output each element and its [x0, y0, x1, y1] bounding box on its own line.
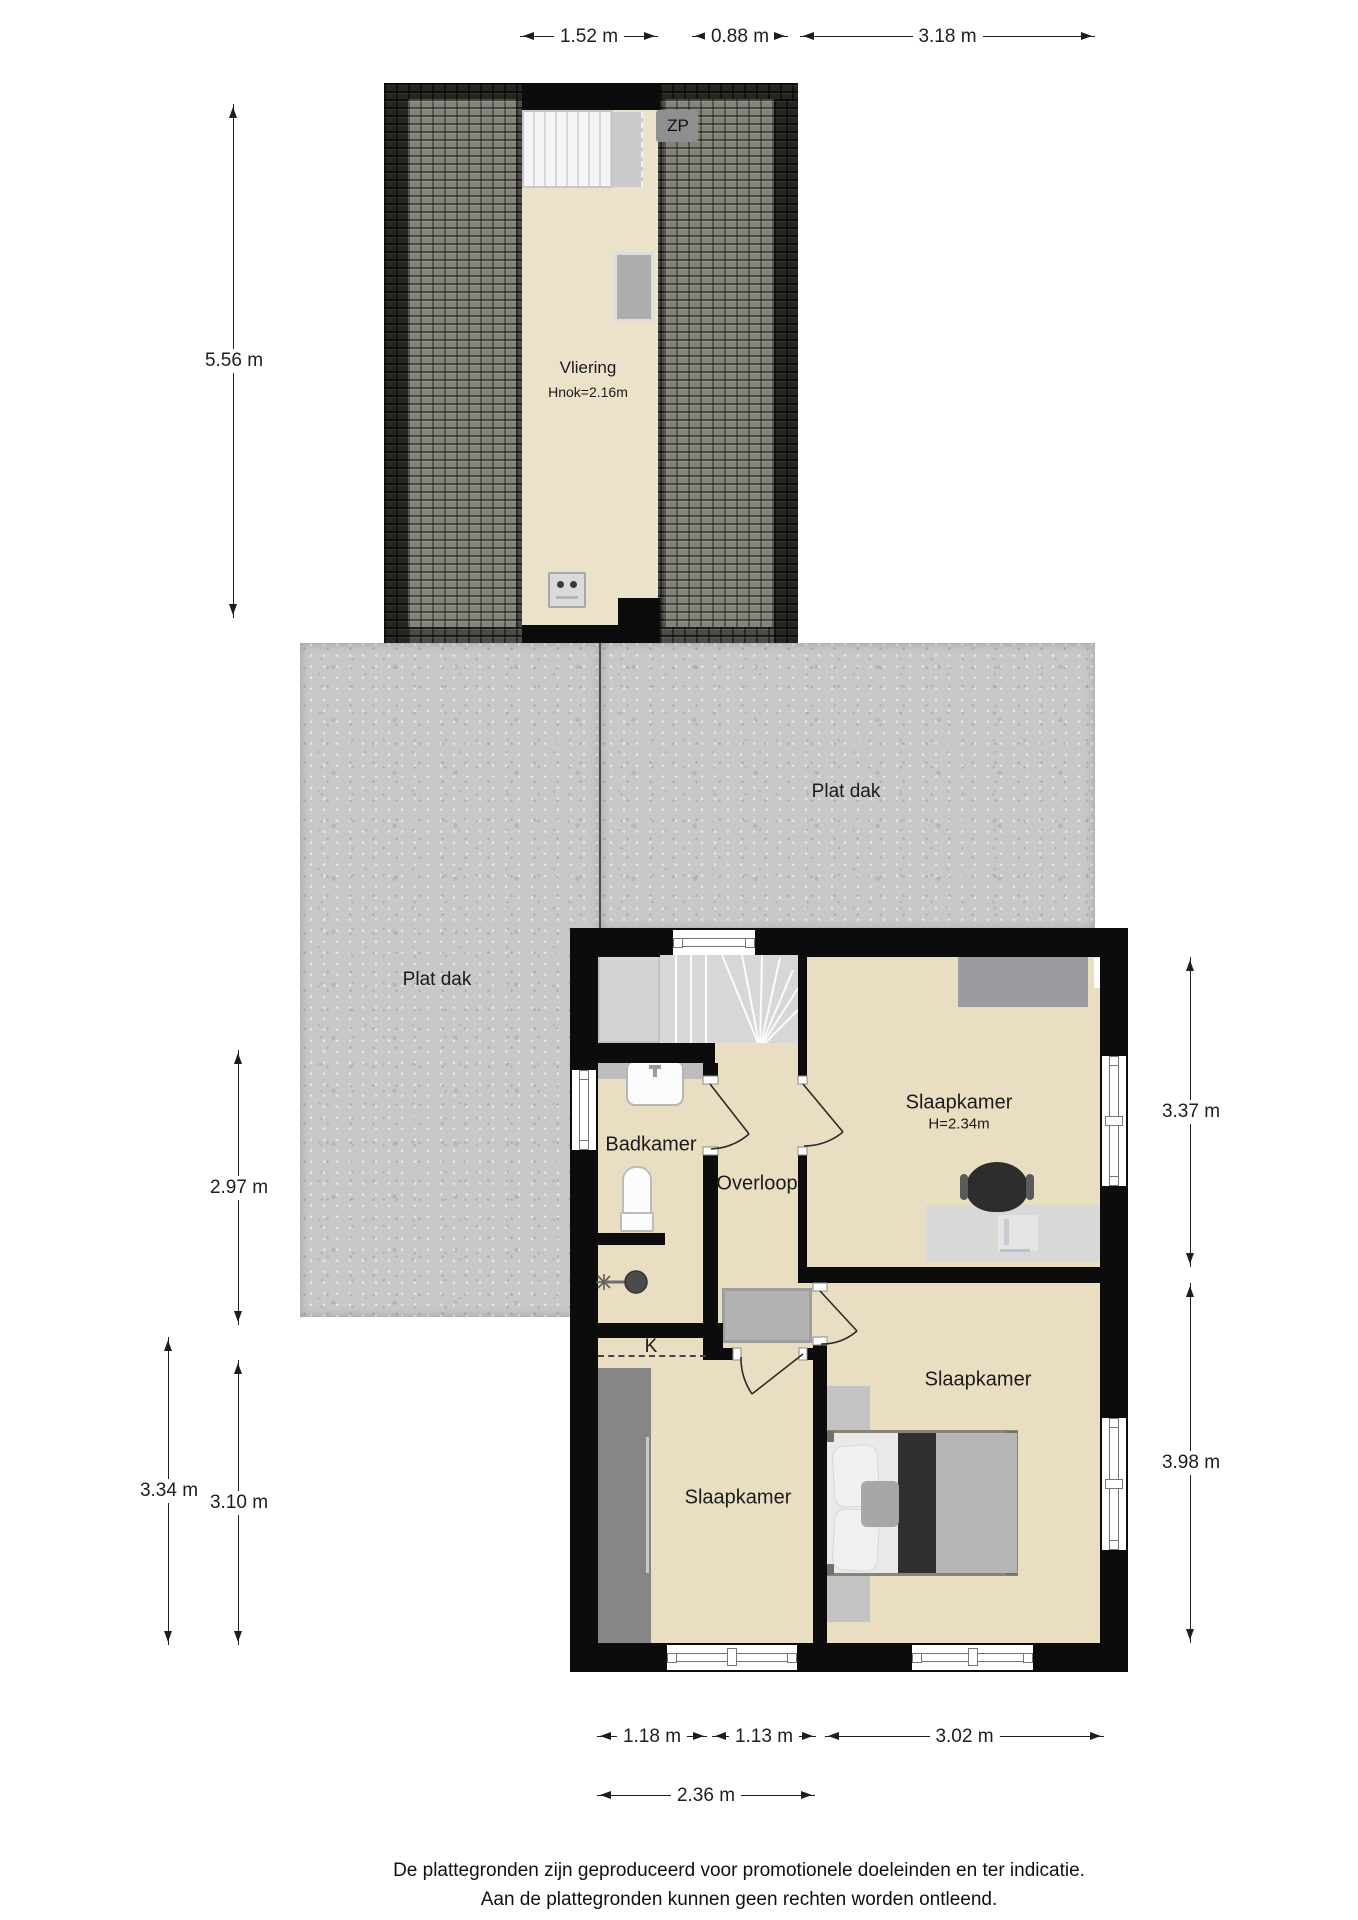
- attic-room-label: Vliering: [560, 358, 617, 378]
- window-top: [673, 930, 755, 955]
- attic-height-label: Hnok=2.16m: [548, 384, 628, 400]
- wall-bedrooms-divider-v: [813, 1345, 827, 1643]
- dim-top-1: 1.52 m: [520, 36, 658, 37]
- attic-stairs: [522, 110, 613, 188]
- wall-bedroomleft-top: [799, 1348, 813, 1360]
- wall-left: [570, 928, 598, 1672]
- bathroom-label: Badkamer: [605, 1134, 696, 1157]
- zp-label: ZP: [667, 116, 689, 136]
- attic-stair-landing: [613, 112, 643, 187]
- bed-blanket-dark: [898, 1433, 936, 1573]
- desk: [926, 1205, 1100, 1262]
- closet-label: K: [645, 1336, 658, 1358]
- disclaimer-line2: Aan de plattegronden kunnen geen rechten…: [279, 1885, 1199, 1914]
- bed-cushion: [861, 1481, 899, 1527]
- bedroom-top-height-label: H=2.34m: [928, 1116, 989, 1133]
- wardrobe-left: [598, 1368, 651, 1643]
- bathroom-half-wall: [598, 1233, 665, 1245]
- window-bottom-right: [912, 1645, 1033, 1670]
- sink-icon: [626, 1060, 684, 1106]
- wall-bedroomleft-top: [710, 1348, 740, 1360]
- skylight-icon: [614, 252, 654, 322]
- bed: [822, 1430, 1018, 1576]
- roof-slope-right: [664, 99, 774, 627]
- wardrobe-top: [958, 957, 1088, 1007]
- landing-mat: [722, 1288, 812, 1343]
- attic-wall-bottom: [522, 625, 660, 643]
- stair-closet-block: [598, 955, 660, 1043]
- window-right-bedroom-bottom: [1102, 1418, 1126, 1550]
- wall-right: [1100, 928, 1128, 1672]
- dim-bottom-1: 1.18 m: [597, 1736, 707, 1737]
- toilet-tank: [620, 1212, 654, 1232]
- roof-edge-left: [384, 83, 408, 643]
- flat-roof-divider: [599, 643, 601, 932]
- window-left-bathroom: [572, 1070, 596, 1150]
- bed-duvet: [936, 1433, 1017, 1573]
- wall-stairs-bedroom: [798, 1155, 807, 1267]
- disclaimer-line1: De plattegronden zijn geproduceerd voor …: [279, 1856, 1199, 1885]
- dim-bottom-total: 2.36 m: [597, 1795, 815, 1796]
- wall-bathroom-landing: [703, 1063, 718, 1080]
- wall-bathroom-top: [598, 1043, 715, 1063]
- window-bottom-left: [667, 1645, 797, 1670]
- dim-top-2: 0.88 m: [692, 36, 788, 37]
- office-chair-icon: [966, 1162, 1028, 1212]
- stove-icon: [548, 572, 586, 608]
- wall-top: [570, 928, 1128, 957]
- roof-slope-left: [408, 99, 516, 627]
- wall-bedrooms-divider-h: [798, 1267, 1100, 1283]
- dim-right-1: 3.37 m: [1190, 957, 1191, 1267]
- dim-bottom-2: 1.13 m: [712, 1736, 816, 1737]
- landing-label: Overloop: [716, 1173, 797, 1196]
- wall-stairs-bedroom: [798, 955, 807, 1080]
- attic-wall-stub: [618, 598, 660, 625]
- bedroom-left-label: Slaapkamer: [685, 1487, 792, 1510]
- roof-edge-right: [774, 83, 798, 643]
- flat-roof-right-label: Plat dak: [812, 781, 881, 803]
- dim-right-2: 3.98 m: [1190, 1283, 1191, 1643]
- window-right-bedroom-top: [1102, 1056, 1126, 1186]
- dim-left-1: 2.97 m: [238, 1050, 239, 1325]
- dim-left-2: 3.34 m: [168, 1337, 169, 1645]
- disclaimer: De plattegronden zijn geproduceerd voor …: [279, 1856, 1199, 1914]
- wall-bottom: [570, 1643, 1128, 1672]
- toilet-icon: [622, 1166, 652, 1214]
- bedroom-top-label: Slaapkamer: [906, 1092, 1013, 1115]
- dim-attic-height: 5.56 m: [233, 104, 234, 618]
- dim-top-3: 3.18 m: [800, 36, 1095, 37]
- dim-left-3: 3.10 m: [238, 1360, 239, 1645]
- floorplan-page: Plat dak Plat dak ZP Vliering Hnok=2.16m: [0, 0, 1358, 1920]
- dim-bottom-3: 3.02 m: [825, 1736, 1104, 1737]
- bedroom-right-label: Slaapkamer: [925, 1369, 1032, 1392]
- flat-roof-left-label: Plat dak: [403, 969, 472, 991]
- attic-wall-top: [522, 83, 660, 110]
